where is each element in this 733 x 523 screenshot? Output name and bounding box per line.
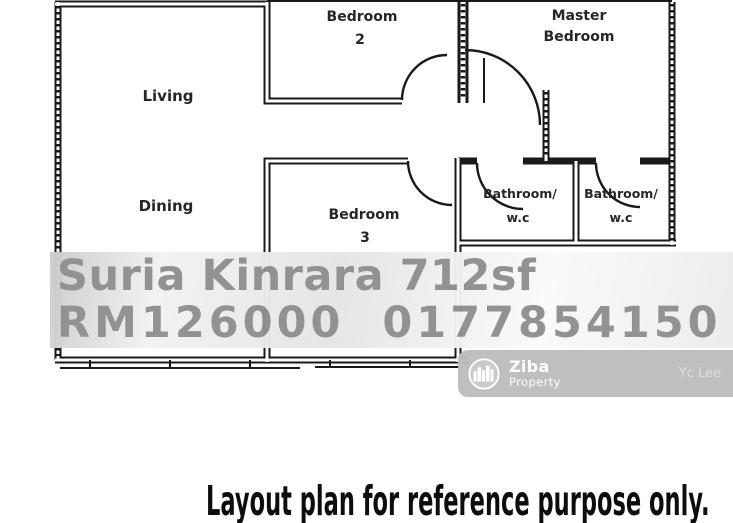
bedroom2-label: Bedroom: [327, 9, 398, 25]
bathroom1-label-2: w.c: [507, 210, 530, 225]
bathroom2-label-2: w.c: [610, 210, 633, 225]
bedroom2-door-arc: [402, 55, 447, 100]
city-skyline-icon: [467, 357, 501, 391]
listing-image: Living Dining Bedroom 2 Master Bedroom B…: [0, 0, 733, 523]
brand-name: Ziba: [509, 359, 561, 375]
caption-text: Layout plan for reference purpose only.: [206, 481, 710, 522]
master-bedroom-label-2: Bedroom: [544, 29, 615, 45]
listing-overlay-band: Suria Kinrara 712sf RM126000 0177854150: [50, 252, 733, 348]
listing-price-phone: RM126000 0177854150: [57, 300, 733, 347]
watermark-strip: Ziba Property Yc Lee: [458, 350, 733, 397]
living-room-label: Living: [142, 87, 193, 105]
bathroom1-label-1: Bathroom/: [483, 186, 557, 201]
dining-room-label: Dining: [139, 197, 194, 215]
master-bedroom-door-arc: [465, 50, 540, 125]
bedroom3-label: Bedroom: [329, 207, 400, 223]
agent-name: Yc Lee: [679, 366, 721, 381]
brand-subtitle: Property: [509, 377, 561, 389]
watermark-brand: Ziba Property: [509, 359, 561, 389]
master-bedroom-label-1: Master: [552, 8, 607, 24]
bedroom2-number: 2: [355, 32, 365, 48]
caption-row: Layout plan for reference purpose only.: [0, 481, 733, 522]
listing-title: Suria Kinrara 712sf: [57, 253, 733, 300]
bathroom2-label-1: Bathroom/: [584, 186, 658, 201]
bedroom3-door-arc: [408, 161, 452, 205]
bedroom3-number: 3: [360, 230, 370, 246]
